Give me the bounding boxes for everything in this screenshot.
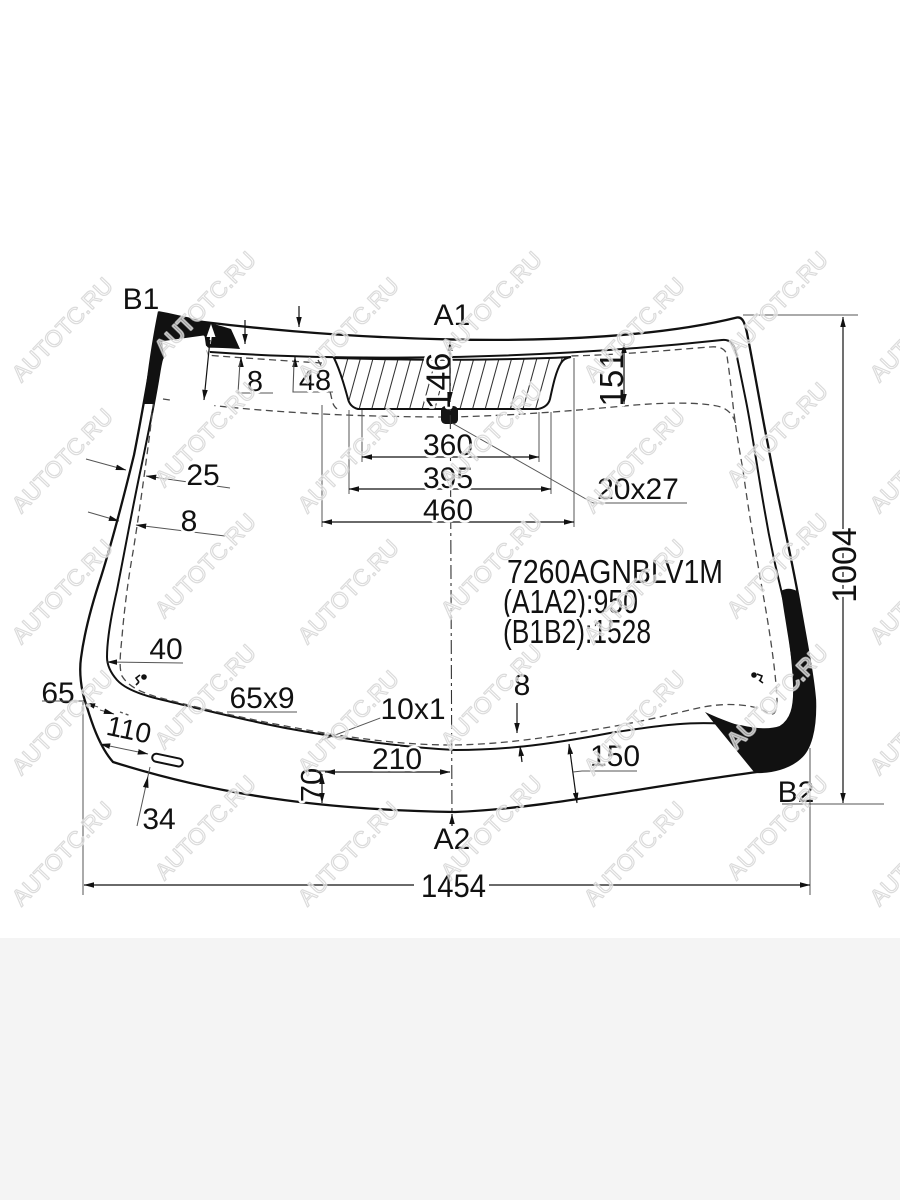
svg-text:210: 210 <box>372 743 422 776</box>
svg-text:460: 460 <box>423 494 473 527</box>
svg-text:1004: 1004 <box>826 527 864 603</box>
svg-text:146: 146 <box>420 353 458 410</box>
svg-text:40: 40 <box>149 633 182 666</box>
svg-text:10x1: 10x1 <box>380 693 445 726</box>
svg-text:8: 8 <box>181 505 198 538</box>
svg-text:34: 34 <box>142 803 175 836</box>
svg-text:65x9: 65x9 <box>229 682 294 715</box>
svg-text:B1: B1 <box>123 283 160 316</box>
